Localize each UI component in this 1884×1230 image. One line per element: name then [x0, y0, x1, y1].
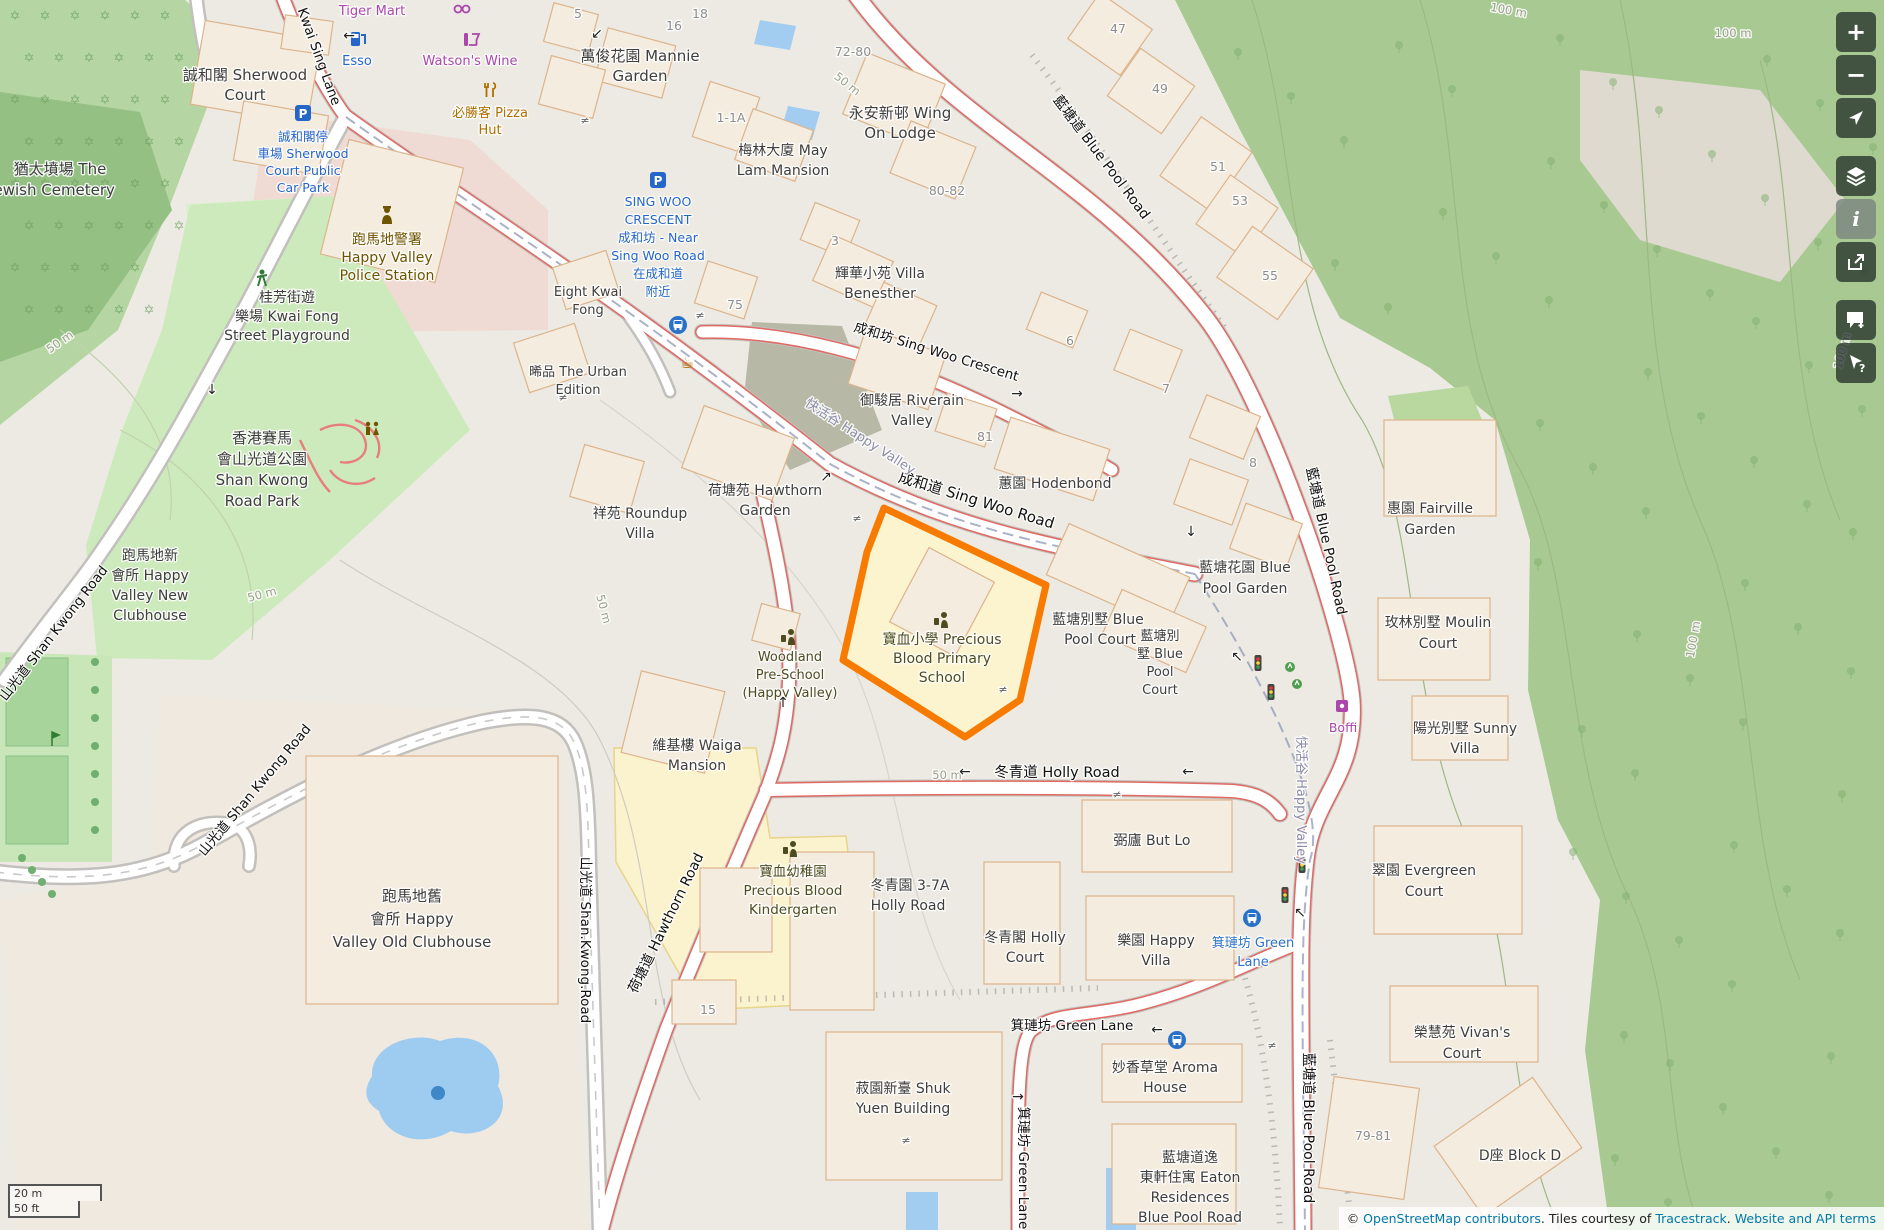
map-label: Court: [1443, 1046, 1482, 1062]
scale-imperial: 50 ft: [8, 1201, 80, 1218]
svg-text:✡: ✡: [160, 9, 171, 24]
map-label: Pre-School: [756, 668, 825, 683]
parking-icon: P: [295, 105, 311, 121]
svg-text:✡: ✡: [160, 93, 171, 108]
sports-pitch: [6, 756, 68, 844]
street-tree: [48, 890, 56, 898]
map-label: 會所 Happy: [370, 910, 453, 928]
bus-icon: [669, 316, 687, 334]
map-label: 冬青園 3-7A: [871, 878, 950, 894]
tree2-icon: [1292, 679, 1302, 689]
svg-text:✡: ✡: [114, 51, 125, 66]
map-label: Watson's Wine: [423, 54, 518, 69]
map-label: Eight Kwai: [554, 285, 622, 300]
map-label: ↑: [777, 695, 789, 711]
map-label: 會山光道公園: [217, 450, 307, 468]
map-label: Boffi: [1329, 720, 1357, 735]
svg-text:✡: ✡: [100, 93, 111, 108]
control-query-features[interactable]: ?: [1836, 343, 1876, 383]
svg-text:✡: ✡: [84, 135, 95, 150]
map-label: Villa: [1141, 953, 1171, 969]
map-label: 輝華小苑 Villa: [835, 266, 925, 282]
parking-icon: P: [650, 172, 666, 188]
svg-text:✡: ✡: [24, 51, 35, 66]
map-viewport[interactable]: ✡✡✡✡✡✡✡✡✡✡✡✡✡✡✡✡✡✡✡✡✡✡✡✡✡✡✡✡✡✡✡✡✡✡✡✡✡✡✡✡…: [0, 0, 1884, 1230]
map-label: 箕璉坊 Green Lane: [1015, 1107, 1032, 1230]
map-label: 3: [831, 233, 839, 248]
map-label: ↙: [591, 26, 603, 42]
svg-text:✡: ✡: [130, 261, 141, 276]
map-label: Precious Blood: [744, 883, 843, 899]
map-label: Woodland: [758, 650, 822, 665]
map-label: 誠和閣停: [278, 129, 328, 144]
map-label: SING WOO: [625, 194, 692, 209]
map-label: 弼廬 But Lo: [1114, 833, 1191, 849]
svg-text:?: ?: [1859, 362, 1865, 373]
map-label: 冬青道 Holly Road: [994, 764, 1120, 781]
pool-fountain-dot: [431, 1086, 445, 1100]
map-label: 菽園新臺 Shuk: [855, 1081, 951, 1097]
map-label: 80-82: [929, 183, 965, 198]
map-label: 翠園 Evergreen: [1372, 863, 1476, 879]
map-label: 維基樓 Waiga: [652, 737, 741, 754]
svg-text:✡: ✡: [40, 261, 51, 276]
svg-text:✡: ✡: [84, 303, 95, 318]
map-label: 必勝客 Pizza: [452, 105, 528, 121]
control-show-my-location[interactable]: [1836, 98, 1876, 138]
signal-icon: [1282, 887, 1289, 903]
map-label: →: [1012, 1089, 1024, 1105]
svg-text:☕: ☕: [680, 353, 694, 372]
svg-text:✡: ✡: [70, 9, 81, 24]
svg-text:✡: ✡: [130, 93, 141, 108]
map-label: ≠: [1112, 788, 1121, 801]
map-label: Residences: [1151, 1190, 1230, 1206]
map-label: Lane: [1237, 955, 1268, 970]
map-label: 永安新邨 Wing: [849, 104, 951, 122]
map-label: Blue Pool Road: [1138, 1210, 1242, 1226]
svg-text:✡: ✡: [24, 219, 35, 234]
bus-icon: [1168, 1031, 1186, 1049]
svg-text:✡: ✡: [100, 261, 111, 276]
control-map-key[interactable]: i: [1836, 199, 1876, 239]
map-label: 車場 Sherwood: [257, 146, 348, 161]
map-label: 7: [1162, 381, 1170, 396]
control-share[interactable]: [1836, 242, 1876, 282]
copyright-prefix: ©: [1347, 1211, 1363, 1226]
svg-text:✡: ✡: [114, 135, 125, 150]
map-label: ↓: [206, 382, 218, 398]
map-label: 8: [1249, 455, 1257, 470]
map-label: Garden: [613, 67, 668, 85]
map-label: Esso: [342, 54, 372, 69]
terms-sep: .: [1727, 1211, 1735, 1226]
building: [1374, 826, 1522, 934]
street-tree: [18, 854, 26, 862]
svg-text:✡: ✡: [54, 219, 65, 234]
map-label: Holly Road: [871, 898, 946, 914]
map-label: 5: [574, 6, 582, 21]
svg-text:✡: ✡: [144, 51, 155, 66]
map-label: ≠: [852, 512, 861, 525]
map-label: ≠: [580, 114, 589, 127]
svg-text:✡: ✡: [174, 219, 185, 234]
map-label: 晞品 The Urban: [529, 365, 627, 380]
map-label: Clubhouse: [113, 608, 187, 624]
map-label: ≠: [695, 309, 704, 322]
map-label: Fong: [572, 303, 603, 318]
map-label: 箕璉坊 Green: [1212, 935, 1295, 951]
map-label: Tiger Mart: [338, 4, 406, 19]
map-label: 荷塘苑 Hawthorn: [708, 483, 822, 499]
map-label: 跑馬地新: [122, 548, 178, 564]
map-label: 梅林大廈 May: [738, 142, 827, 159]
map-label: 72-80: [835, 44, 871, 59]
map-label: Court Public: [265, 163, 340, 178]
control-add-note[interactable]: [1836, 300, 1876, 340]
cafe-icon: ☕: [680, 353, 694, 372]
signal-icon: [1268, 684, 1275, 700]
street-tree: [28, 866, 36, 874]
map-label: 冬青閣 Holly: [984, 930, 1066, 946]
tracestrack-link[interactable]: Tracestrack: [1655, 1211, 1726, 1226]
svg-text:✡: ✡: [10, 9, 21, 24]
svg-text:✡: ✡: [114, 219, 125, 234]
map-label: Hut: [478, 123, 501, 138]
map-label: 藍塘花園 Blue: [1199, 560, 1290, 576]
map-label: ↓: [1185, 524, 1197, 540]
control-zoom-out[interactable]: −: [1836, 55, 1876, 95]
map-label: 49: [1152, 81, 1168, 96]
map-label: D座 Block D: [1479, 1148, 1561, 1164]
map-label: 6: [1066, 333, 1074, 348]
map-label: Villa: [625, 526, 655, 542]
map-label: CRESCENT: [625, 212, 692, 227]
bus-icon: [1243, 909, 1261, 927]
map-label: Benesther: [844, 286, 916, 302]
map-label: 玫林別墅 Moulin: [1385, 615, 1492, 631]
map-label: Kindergarten: [749, 902, 837, 918]
map-label: 53: [1232, 193, 1248, 208]
map-label: Valley: [891, 413, 933, 429]
svg-text:✡: ✡: [10, 93, 21, 108]
map-label: ≠: [1267, 1039, 1276, 1052]
map-label: ≠: [558, 391, 567, 404]
map-label: 樂場 Kwai Fong: [235, 308, 339, 325]
map-label: Pool: [1147, 665, 1174, 680]
street-tree: [91, 826, 99, 834]
control-zoom-in[interactable]: +: [1836, 12, 1876, 52]
map-label: Court: [1405, 884, 1444, 900]
street-tree: [91, 770, 99, 778]
map-label: 桂芳街遊: [259, 289, 315, 306]
map-label: Court: [224, 86, 265, 104]
map-label: 75: [727, 297, 743, 312]
shop-icon: [1336, 700, 1348, 712]
map-label: ≠: [998, 683, 1007, 696]
map-label: ←: [1182, 764, 1194, 780]
map-label: 藍塘道 Blue Pool Road: [1300, 1053, 1316, 1203]
map-label: Garden: [739, 503, 790, 519]
map-label: Street Playground: [224, 328, 350, 344]
svg-text:✡: ✡: [144, 135, 155, 150]
map-label: 79-81: [1355, 1128, 1391, 1143]
map-label: Mansion: [668, 758, 726, 774]
svg-text:✡: ✡: [130, 177, 141, 192]
map-label: 81: [977, 429, 993, 444]
svg-text:✡: ✡: [114, 303, 125, 318]
map-label: Court: [1419, 636, 1458, 652]
map-label: 妙香草堂 Aroma: [1112, 1060, 1218, 1076]
terms-link[interactable]: Website and API terms: [1735, 1211, 1876, 1226]
svg-text:✡: ✡: [100, 9, 111, 24]
map-label: 墅 Blue: [1137, 647, 1183, 662]
svg-text:✡: ✡: [70, 93, 81, 108]
map-label: →: [1011, 386, 1023, 402]
scale-metric: 20 m: [8, 1184, 102, 1201]
map-label: Garden: [1404, 522, 1455, 538]
map-label: 55: [1262, 268, 1278, 283]
svg-text:✡: ✡: [54, 303, 65, 318]
tiles-courtesy-text: . Tiles courtesy of: [1541, 1211, 1655, 1226]
svg-text:✡: ✡: [54, 135, 65, 150]
map-label: 跑馬地舊: [382, 887, 442, 905]
svg-text:✡: ✡: [84, 219, 95, 234]
map-label: Blood Primary: [893, 651, 991, 667]
map-label: ↖: [1294, 905, 1306, 921]
control-layers[interactable]: [1836, 156, 1876, 196]
svg-text:✡: ✡: [40, 9, 51, 24]
map-label: Villa: [1450, 741, 1480, 757]
map-label: Jewish Cemetery: [0, 181, 115, 199]
map-label: 萬俊花園 Mannie: [580, 47, 699, 65]
signal-icon: [1255, 655, 1262, 671]
map-label: 寶血小學 Precious: [882, 632, 1001, 648]
map-label: On Lodge: [864, 124, 936, 142]
map-label: 陽光別墅 Sunny: [1413, 721, 1517, 737]
osm-contributors-link[interactable]: OpenStreetMap contributors: [1363, 1211, 1541, 1226]
map-label: Road Park: [225, 492, 300, 510]
svg-text:✡: ✡: [160, 177, 171, 192]
map-label: 惠園 Fairville: [1387, 501, 1473, 517]
map-label: ↗: [820, 469, 832, 485]
attribution-bar: © OpenStreetMap contributors. Tiles cour…: [1339, 1207, 1884, 1230]
map-label: Valley Old Clubhouse: [333, 933, 492, 951]
map-label: 山光道 Shan.Kwong.Road: [577, 857, 593, 1023]
map-label: 藍塘道逸: [1162, 1150, 1218, 1166]
map-label: Sing Woo Road: [611, 248, 705, 263]
svg-text:✡: ✡: [174, 51, 185, 66]
map-label: School: [919, 670, 965, 686]
map-label: 藍塘別墅 Blue: [1052, 612, 1143, 628]
map-label: ↖: [1231, 649, 1243, 665]
map-label: 100 m: [1715, 26, 1752, 40]
svg-text:✡: ✡: [40, 93, 51, 108]
map-label: ←: [1151, 1022, 1163, 1038]
map-label: 藍塘別: [1140, 628, 1179, 644]
svg-text:✡: ✡: [130, 9, 141, 24]
map-label: 東軒住寓 Eaton: [1140, 1169, 1241, 1186]
svg-text:✡: ✡: [144, 303, 155, 318]
map-canvas[interactable]: ✡✡✡✡✡✡✡✡✡✡✡✡✡✡✡✡✡✡✡✡✡✡✡✡✡✡✡✡✡✡✡✡✡✡✡✡✡✡✡✡…: [0, 0, 1884, 1230]
map-label: 在成和道: [633, 266, 684, 281]
map-label: 會所 Happy: [111, 568, 189, 584]
map-label: 香港賽馬: [232, 429, 292, 447]
svg-text:P: P: [654, 174, 663, 188]
svg-text:P: P: [299, 107, 308, 121]
map-label: 16: [666, 18, 682, 33]
map-label: Car Park: [277, 180, 330, 195]
map-label: Police Station: [340, 268, 435, 284]
map-label: Yuen Building: [855, 1101, 951, 1117]
map-label: ←: [343, 28, 355, 44]
map-label: 15: [700, 1002, 716, 1017]
map-label: Pool Garden: [1203, 581, 1288, 597]
map-label: 樂園 Happy: [1117, 932, 1195, 949]
map-label: Lam Mansion: [737, 163, 830, 179]
svg-text:✡: ✡: [144, 219, 155, 234]
scale-bar: 20 m 50 ft: [8, 1184, 102, 1218]
svg-text:✡: ✡: [84, 51, 95, 66]
map-controls: +−i?: [1836, 12, 1880, 386]
pool-rect-south: [906, 1192, 938, 1230]
building: [306, 756, 558, 1004]
map-label: 快活谷 Happy Valley: [1293, 736, 1308, 864]
map-label: 御駿居 Riverain: [860, 393, 964, 409]
map-label: 祥苑 Roundup: [593, 506, 688, 522]
svg-text:✡: ✡: [10, 261, 21, 276]
svg-text:✡: ✡: [70, 261, 81, 276]
map-label: 寶血幼稚園: [759, 864, 827, 880]
street-tree: [91, 742, 99, 750]
map-label: Valley New: [112, 588, 189, 604]
map-label: 50 m: [932, 768, 962, 782]
map-label: 誠和閣 Sherwood: [183, 66, 307, 84]
street-tree: [38, 878, 46, 886]
tree2-icon: [1285, 662, 1295, 672]
map-label: Pool Court: [1064, 632, 1136, 648]
map-label: House: [1143, 1080, 1187, 1096]
map-label: 18: [692, 6, 708, 21]
svg-text:✡: ✡: [24, 303, 35, 318]
map-label: Court: [1006, 950, 1045, 966]
map-label: 1-1A: [717, 110, 746, 125]
map-label: 箕璉坊 Green Lane: [1011, 1017, 1134, 1034]
map-label: 榮慧苑 Vivan's: [1414, 1025, 1511, 1041]
map-label: ≠: [901, 1134, 910, 1147]
svg-text:✡: ✡: [24, 135, 35, 150]
map-label: 猶太墳場 The: [14, 160, 107, 178]
map-label: Happy Valley: [341, 250, 432, 266]
map-label: Court: [1142, 683, 1178, 698]
map-label: ←: [959, 764, 971, 780]
svg-text:✡: ✡: [54, 51, 65, 66]
street-tree: [91, 798, 99, 806]
svg-text:✡: ✡: [174, 135, 185, 150]
map-label: 跑馬地警署: [352, 232, 422, 248]
map-label: 成和坊 - Near: [618, 230, 699, 245]
map-label: 蕙園 Hodenbond: [998, 476, 1111, 492]
street-tree: [91, 686, 99, 694]
street-tree: [91, 714, 99, 722]
map-label: 附近: [645, 284, 671, 299]
map-label: (Happy Valley): [743, 686, 838, 701]
map-label: 51: [1210, 159, 1226, 174]
map-label: 47: [1110, 21, 1126, 36]
street-tree: [91, 658, 99, 666]
map-label: Shan Kwong: [216, 471, 309, 489]
